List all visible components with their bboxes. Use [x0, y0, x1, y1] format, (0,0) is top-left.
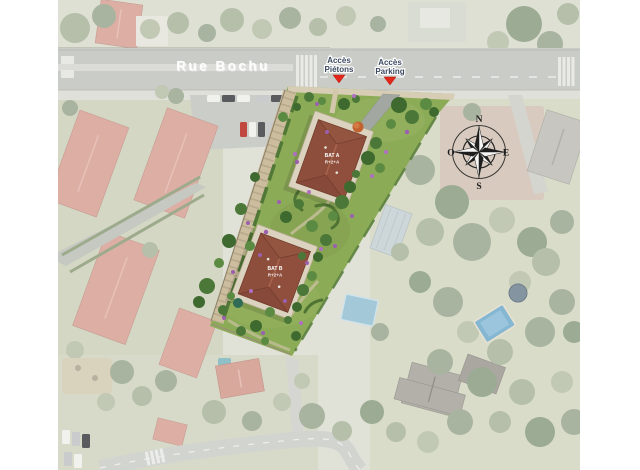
tree: [218, 305, 228, 315]
tree: [168, 88, 184, 104]
tree: [313, 252, 323, 262]
north-building: [420, 8, 450, 28]
tree: [235, 203, 247, 215]
tree: [487, 339, 513, 365]
tree: [551, 371, 573, 393]
car: [82, 434, 90, 448]
car: [249, 122, 256, 137]
tree: [304, 92, 314, 102]
tree: [557, 3, 579, 25]
tree: [261, 337, 269, 345]
tree: [509, 379, 535, 405]
orange-tree-highlight: [354, 123, 360, 129]
access-parking-line2: Parking: [375, 67, 404, 76]
tree: [453, 223, 491, 261]
tree: [549, 289, 575, 315]
shrub: [283, 299, 287, 303]
tree: [273, 393, 291, 411]
tree: [409, 271, 431, 293]
tree: [297, 284, 309, 296]
shrub: [299, 321, 303, 325]
shrub: [258, 253, 262, 257]
shrub: [384, 150, 388, 154]
shrub: [315, 102, 319, 106]
tree: [336, 6, 356, 26]
tree: [361, 151, 375, 165]
road-marking: [61, 70, 74, 78]
building-b-floors: R+2+A: [268, 273, 283, 278]
tree: [292, 302, 302, 312]
tree: [429, 107, 439, 117]
tree: [202, 400, 226, 424]
tree: [110, 360, 134, 384]
tree: [142, 242, 158, 258]
tree: [371, 323, 389, 341]
tree: [60, 13, 90, 43]
tree: [525, 317, 555, 347]
shrub: [277, 200, 281, 204]
shrub: [261, 331, 265, 335]
car: [256, 95, 269, 102]
tree: [386, 422, 406, 442]
tree: [245, 241, 255, 251]
tree: [250, 172, 260, 182]
tree: [335, 195, 349, 209]
tree: [265, 307, 275, 317]
shrub: [293, 152, 297, 156]
tree: [375, 163, 385, 173]
car: [64, 452, 72, 466]
shrub: [307, 190, 311, 194]
playground: [62, 358, 112, 394]
tree: [92, 4, 116, 28]
shrub: [370, 174, 374, 178]
tree: [386, 119, 396, 129]
tree: [227, 292, 235, 300]
tree: [352, 170, 360, 178]
compass-letter-s: S: [476, 182, 481, 192]
tree: [309, 18, 327, 36]
tree: [433, 287, 463, 317]
right-margin: [580, 0, 640, 470]
tree: [532, 248, 560, 276]
shrub: [405, 130, 409, 134]
tree: [370, 137, 382, 149]
tree: [198, 24, 216, 42]
tree: [306, 220, 318, 232]
shrub: [231, 270, 235, 274]
tree: [391, 97, 407, 113]
tree: [417, 431, 439, 453]
tree: [222, 234, 236, 248]
shrub: [319, 247, 323, 251]
shrub: [305, 261, 309, 265]
tree: [279, 7, 301, 29]
car: [74, 454, 82, 468]
tree: [167, 12, 189, 34]
tree: [506, 6, 542, 42]
shrub: [325, 130, 329, 134]
tree: [320, 234, 332, 246]
tree: [193, 296, 205, 308]
tree: [62, 100, 78, 116]
compass-letter-o: O: [447, 149, 454, 159]
tree: [278, 112, 288, 122]
shrub: [350, 214, 354, 218]
building-a-floors: R+2+A: [325, 160, 340, 165]
building-b-label: BAT B: [268, 266, 283, 272]
tree: [416, 218, 444, 246]
tree: [307, 271, 317, 281]
tree: [155, 370, 177, 392]
tree: [420, 98, 432, 110]
tree: [338, 98, 350, 110]
road-marking: [61, 56, 74, 64]
compass-letter-e: E: [503, 149, 509, 159]
teal-tree: [233, 298, 243, 308]
tree: [284, 316, 292, 324]
tree: [318, 97, 326, 105]
car: [62, 430, 70, 444]
shrub: [295, 160, 299, 164]
shrub: [246, 221, 250, 225]
access-pietons-line1: Accès: [327, 56, 351, 65]
tree: [220, 8, 244, 32]
tree: [391, 243, 409, 261]
tree: [280, 211, 292, 223]
tree: [140, 19, 160, 39]
access-pietons-line2: Piétons: [325, 65, 354, 74]
tree: [291, 331, 301, 341]
tree: [252, 19, 272, 39]
car: [72, 432, 80, 446]
tree: [97, 393, 115, 411]
aerial-map: BAT A R+2+A BAT: [0, 0, 640, 470]
car: [240, 122, 247, 137]
tree: [250, 320, 262, 332]
left-margin: [0, 0, 58, 470]
car: [207, 95, 220, 102]
tree: [242, 411, 262, 431]
access-parking-line1: Accès: [378, 58, 402, 67]
street-label: Rue Bochu: [176, 59, 270, 74]
tree: [405, 110, 419, 124]
tree: [298, 252, 306, 260]
car: [258, 122, 265, 137]
tree: [236, 326, 246, 336]
car: [237, 95, 250, 102]
shrub: [333, 244, 337, 248]
tree: [435, 185, 469, 219]
tree: [214, 258, 224, 268]
tree: [293, 103, 301, 111]
tree: [155, 85, 169, 99]
tree: [66, 341, 84, 359]
tree: [299, 403, 325, 429]
parked-cars-row: [207, 95, 283, 102]
tree: [132, 386, 152, 406]
car: [222, 95, 235, 102]
shrub: [249, 289, 253, 293]
tree: [550, 210, 574, 234]
shrub: [264, 230, 268, 234]
tree: [332, 421, 352, 441]
site-plan-page: BAT A R+2+A BAT: [0, 0, 640, 470]
tree: [525, 417, 555, 447]
tree: [294, 199, 304, 209]
shrub: [222, 316, 226, 320]
tree: [447, 409, 473, 435]
tree: [467, 367, 497, 397]
shrub: [352, 94, 356, 98]
building-a-label: BAT A: [325, 153, 340, 159]
tree: [489, 207, 515, 233]
tree: [199, 278, 215, 294]
tree: [344, 181, 356, 193]
tree: [360, 400, 384, 424]
tree: [294, 373, 310, 389]
trampoline: [509, 284, 527, 302]
compass-letter-n: N: [476, 115, 483, 125]
tree: [328, 211, 338, 221]
tree: [427, 349, 453, 375]
tree: [489, 411, 511, 433]
tree: [370, 16, 386, 32]
